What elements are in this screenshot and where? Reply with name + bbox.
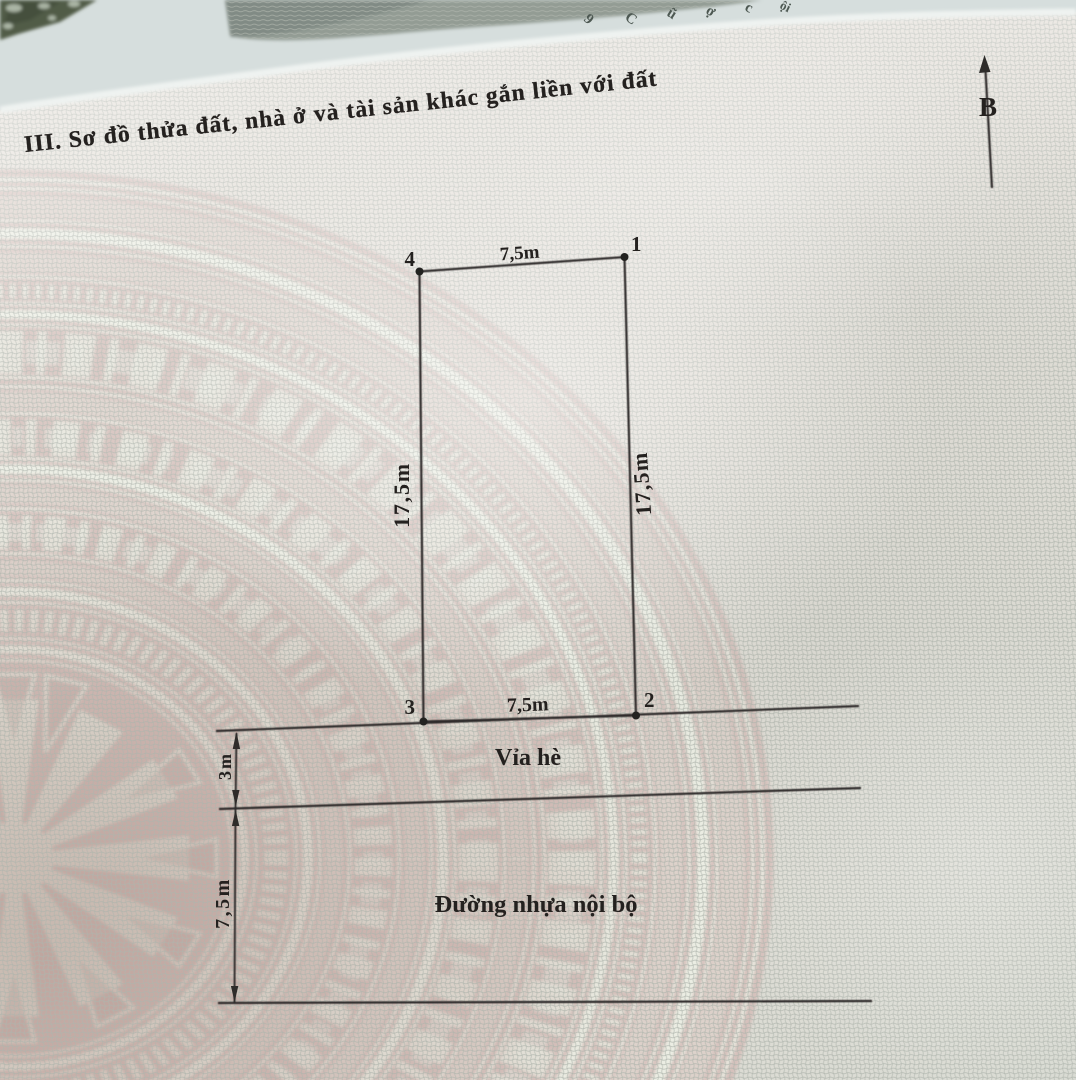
svg-text:7,5m: 7,5m [507, 693, 550, 716]
svg-text:4: 4 [405, 247, 416, 271]
svg-text:3: 3 [405, 695, 416, 719]
svg-text:Đường nhựa nội bộ: Đường nhựa nội bộ [435, 891, 638, 918]
svg-text:7,5m: 7,5m [499, 242, 540, 266]
svg-text:7,5m: 7,5m [212, 877, 234, 929]
svg-text:B: B [979, 92, 997, 122]
svg-text:17,5m: 17,5m [389, 462, 414, 528]
svg-text:2: 2 [644, 688, 655, 712]
svg-text:17,5m: 17,5m [627, 451, 656, 517]
svg-text:Vỉa hè: Vỉa hè [495, 745, 561, 771]
svg-text:1: 1 [631, 232, 642, 256]
svg-text:3m: 3m [215, 752, 235, 780]
